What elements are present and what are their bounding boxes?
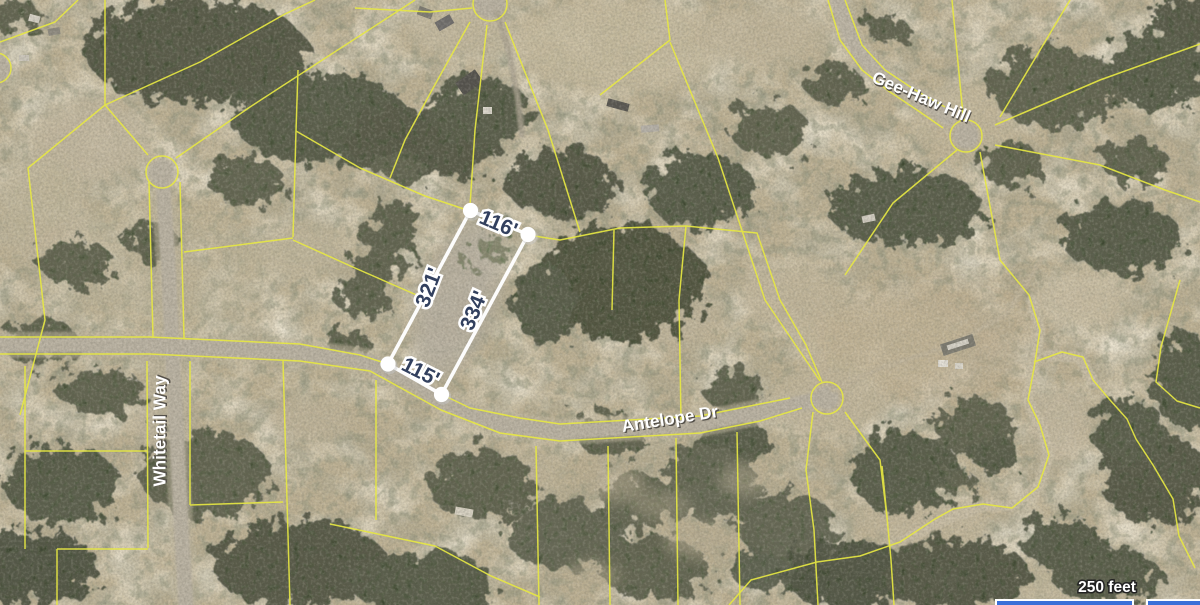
svg-text:250 feet: 250 feet — [1078, 579, 1136, 596]
svg-text:Whitetail Way: Whitetail Way — [150, 375, 170, 487]
